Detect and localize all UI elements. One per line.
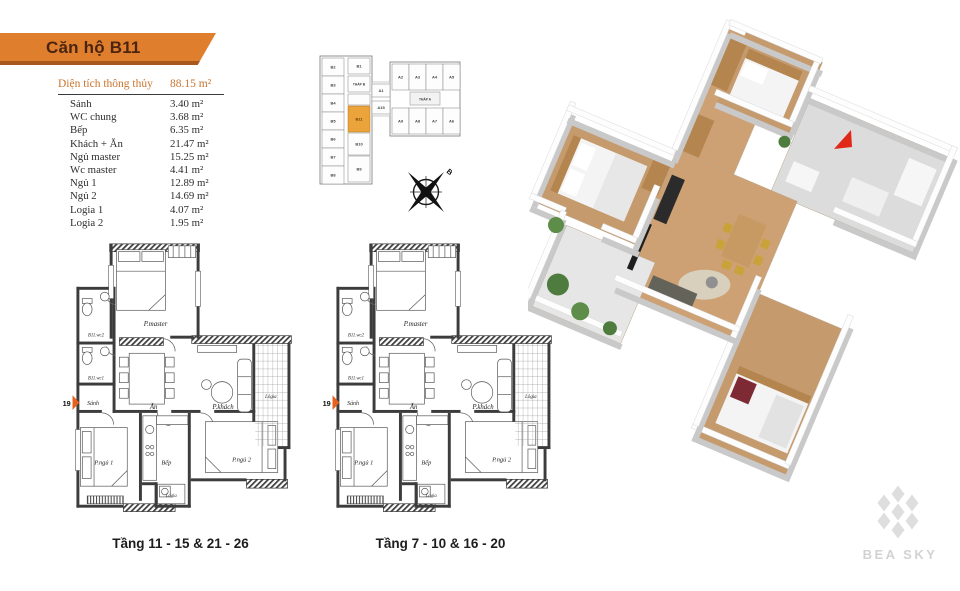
banner-shadow-strip [0,61,201,65]
key-plan-label: B4 [330,101,336,106]
round-table [211,382,232,403]
area-row-value: 3.68 m² [170,111,224,124]
key-plan-label: B11 [355,117,363,122]
logo-diamond [878,513,891,530]
kitchen-cabinet [157,416,188,425]
key-plan-label: B7 [330,155,336,160]
console-desk [458,345,497,352]
label-wc1: B11.wc1 [348,377,364,382]
key-plan-label: THÁP A [419,97,432,102]
label-dining: Ăn [149,403,158,411]
area-row: WC chung3.68 m² [58,111,224,124]
key-plan-label: A5 [449,75,455,80]
iso-plant [778,136,790,148]
logo-diamond [906,495,919,512]
floor-plan-1: P.master B11.wc2 B11.wc1 Sảnh Ăn P.khách… [58,238,303,536]
key-plan-label: B9 [356,167,362,172]
area-table-header: Diện tích thông thủy 88.15 m² [58,78,224,90]
label-living: P.khách [211,404,234,411]
logo-diamond [892,486,905,503]
area-row-label: Ngủ master [58,151,170,164]
brochure-page: Căn hộ B11 Diện tích thông thủy 88.15 m²… [0,0,960,591]
kitchen-sink [406,425,414,433]
area-table-divider [58,94,224,95]
area-table-rows: Sảnh3.40 m²WC chung3.68 m²Bếp6.35 m²Khác… [58,98,224,230]
area-row-label: Logia 1 [58,204,170,217]
sofa [498,359,512,412]
area-row-value: 3.40 m² [170,98,224,111]
key-plan-label: A15 [377,105,385,110]
area-table-total: 88.15 m² [170,78,224,90]
console-desk [198,345,237,352]
key-plan-label: A6 [449,119,455,124]
toilet [342,303,352,316]
floor-range-caption-2: Tầng 7 - 10 & 16 - 20 [318,536,563,551]
label-logia2: Lógia [425,494,438,499]
area-row-label: Bếp [58,124,170,137]
area-row-label: Sảnh [58,98,170,111]
area-row-value: 15.25 m² [170,151,224,164]
label-kitchen: Bếp [421,460,431,467]
key-plan-label: B8 [330,173,336,178]
label-master: P.master [143,321,168,328]
logo-diamond [892,504,905,521]
area-row: Khách + Ăn21.47 m² [58,138,224,151]
area-row-value: 4.07 m² [170,204,224,217]
floor-range-caption-1: Tầng 11 - 15 & 21 - 26 [58,536,303,551]
dining-table [129,353,164,404]
logo-diamond [878,495,891,512]
sofa [238,359,252,412]
logo-diamond [892,522,905,539]
label-kitchen: Bếp [161,460,171,467]
area-row-value: 6.35 m² [170,124,224,137]
area-row-label: Ngủ 1 [58,177,170,190]
label-dining: Ăn [409,403,418,411]
key-plan-unit [348,94,370,105]
label-wc2: B11.wc2 [348,334,365,339]
area-row-value: 1.95 m² [170,217,224,230]
bed-2 [465,422,537,473]
title-banner: Căn hộ B11 [0,33,216,65]
window-louver-strip [87,496,123,504]
area-row: Logia 21.95 m² [58,217,224,230]
key-plan-label: B1 [356,64,362,69]
label-bed1: P.ngủ 1 [93,460,113,467]
compass-north-label: B [445,167,452,178]
kitchen-cabinet [417,416,448,425]
label-wc2: B11.wc2 [88,334,105,339]
area-row-value: 4.41 m² [170,164,224,177]
label-bed2: P.ngủ 2 [231,457,252,464]
area-table-title: Diện tích thông thủy [58,78,170,90]
sink [360,292,369,301]
key-plan-label: A2 [398,75,404,80]
floor-plan-2: P.master B11.wc2 B11.wc1 Sảnh Ăn P.khách… [318,238,563,536]
area-row: Wc master4.41 m² [58,164,224,177]
key-plan-label: B2 [330,65,336,70]
label-logia: Lôgia [264,395,277,400]
area-row-label: WC chung [58,111,170,124]
area-row-label: Ngủ 2 [58,190,170,203]
toilet [82,303,92,316]
area-row: Bếp6.35 m² [58,124,224,137]
area-row: Ngủ 214.69 m² [58,190,224,203]
key-plan-label: A8 [415,119,421,124]
area-row: Logia 14.07 m² [58,204,224,217]
key-plan-label: A4 [432,75,438,80]
iso-plant [603,321,617,335]
apartment-3d-render [528,10,960,485]
label-hall: Sảnh [87,401,99,407]
area-row-value: 14.69 m² [170,190,224,203]
page-title: Căn hộ B11 [0,33,216,62]
window-louver-strip [347,496,383,504]
label-master: P.master [403,321,428,328]
area-row: Ngủ 112.89 m² [58,177,224,190]
key-plan-label: B6 [330,137,336,142]
iso-plant [571,302,589,320]
sink [100,292,109,301]
beasky-logo-icon [868,482,928,546]
area-table: Diện tích thông thủy 88.15 m² Sảnh3.40 m… [58,78,224,230]
iso-plant [547,273,569,295]
bed-2 [205,422,277,473]
iso-plant [548,217,564,233]
armchair [462,380,472,390]
area-row-value: 12.89 m² [170,177,224,190]
area-row: Sảnh3.40 m² [58,98,224,111]
key-plan-label: B3 [330,83,336,88]
label-bed1: P.ngủ 1 [353,460,373,467]
logo-diamond [906,513,919,530]
area-row-value: 21.47 m² [170,138,224,151]
axis-number: 19 [323,399,331,408]
armchair [202,380,212,390]
key-plan-label: A3 [415,75,421,80]
label-living: P.khách [471,404,494,411]
area-row-label: Logia 2 [58,217,170,230]
key-plan-label: A1 [378,88,384,93]
round-table [471,382,492,403]
wardrobe [428,246,455,258]
wardrobe [168,246,195,258]
floor-plan-drawing: P.master B11.wc2 B11.wc1 Sảnh Ăn P.khách… [318,238,563,536]
key-plan-label: B5 [330,119,336,124]
key-plan-label: A7 [432,119,438,124]
key-plan-label: A9 [398,119,404,124]
dining-table [389,353,424,404]
compass-icon: B [402,162,452,218]
label-wc1: B11.wc1 [88,377,104,382]
label-logia2: Lógia [165,494,178,499]
floor-plan-drawing: P.master B11.wc2 B11.wc1 Sảnh Ăn P.khách… [58,238,303,536]
label-bed2: P.ngủ 2 [491,457,512,464]
axis-number: 19 [63,399,71,408]
area-row-label: Khách + Ăn [58,138,170,151]
label-hall: Sảnh [347,401,359,407]
area-row-label: Wc master [58,164,170,177]
key-plan-label: B10 [355,142,363,147]
beasky-logo-text: BEA SKY [844,547,956,562]
kitchen-sink [146,425,154,433]
area-row: Ngủ master15.25 m² [58,151,224,164]
key-plan-label: THÁP B [353,82,366,87]
